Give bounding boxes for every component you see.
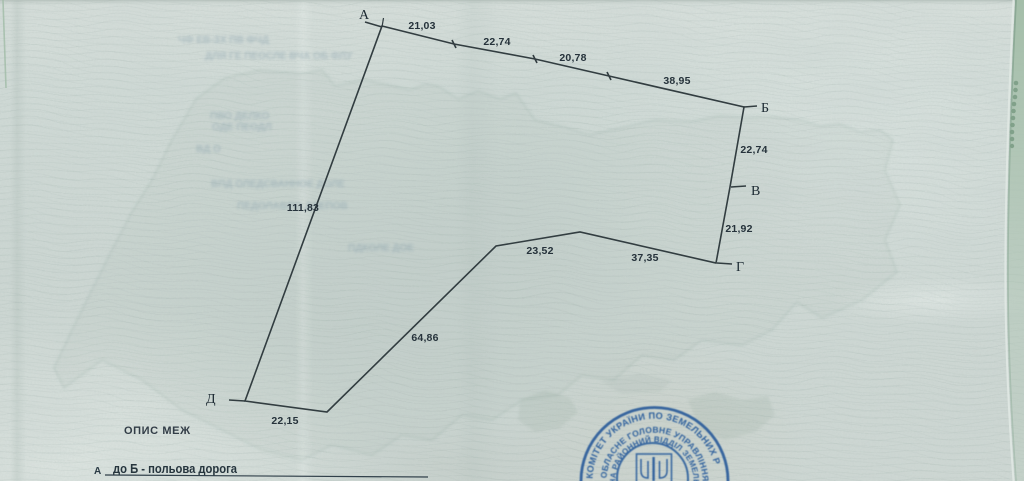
svg-text:21,03: 21,03: [408, 20, 435, 32]
svg-text:Д: Д: [206, 392, 216, 407]
svg-text:64,86: 64,86: [411, 332, 438, 344]
svg-text:В: В: [751, 184, 760, 199]
svg-text:до Б - польова дорога: до Б - польова дорога: [113, 461, 238, 476]
svg-text:37,35: 37,35: [631, 252, 658, 264]
svg-text:21,92: 21,92: [725, 223, 752, 235]
svg-text:А: А: [94, 466, 101, 477]
svg-text:20,78: 20,78: [559, 52, 586, 64]
svg-text:111,83: 111,83: [287, 202, 319, 214]
svg-text:ВД О: ВД О: [196, 144, 221, 155]
svg-text:22,74: 22,74: [740, 144, 767, 156]
svg-text:38,95: 38,95: [663, 75, 690, 87]
svg-text:22,15: 22,15: [271, 415, 298, 427]
svg-text:Б: Б: [761, 101, 769, 116]
svg-text:ОПИС МЕЖ: ОПИС МЕЖ: [124, 425, 191, 437]
svg-text:ОДЕ ПЕОДЛ: ОДЕ ПЕОДЛ: [212, 122, 272, 133]
svg-text:22,74: 22,74: [483, 36, 510, 48]
svg-text:ПВО ДЕЛКО: ПВО ДЕЛКО: [210, 111, 270, 122]
svg-text:ПДКОЛЕ ДОЕ: ПДКОЛЕ ДОЕ: [348, 243, 414, 254]
svg-text:Г: Г: [736, 260, 744, 275]
svg-text:ЧФ ЕВ-ЗХ ПВ ФЧД: ЧФ ЕВ-ЗХ ПВ ФЧД: [178, 35, 269, 46]
svg-text:ДЛЯ ГЕ ПЕОСЛЕ ВЧА ОБ ФЛУ: ДЛЯ ГЕ ПЕОСЛЕ ВЧА ОБ ФЛУ: [205, 51, 353, 62]
svg-text:А: А: [359, 8, 370, 23]
svg-text:23,52: 23,52: [526, 245, 553, 257]
